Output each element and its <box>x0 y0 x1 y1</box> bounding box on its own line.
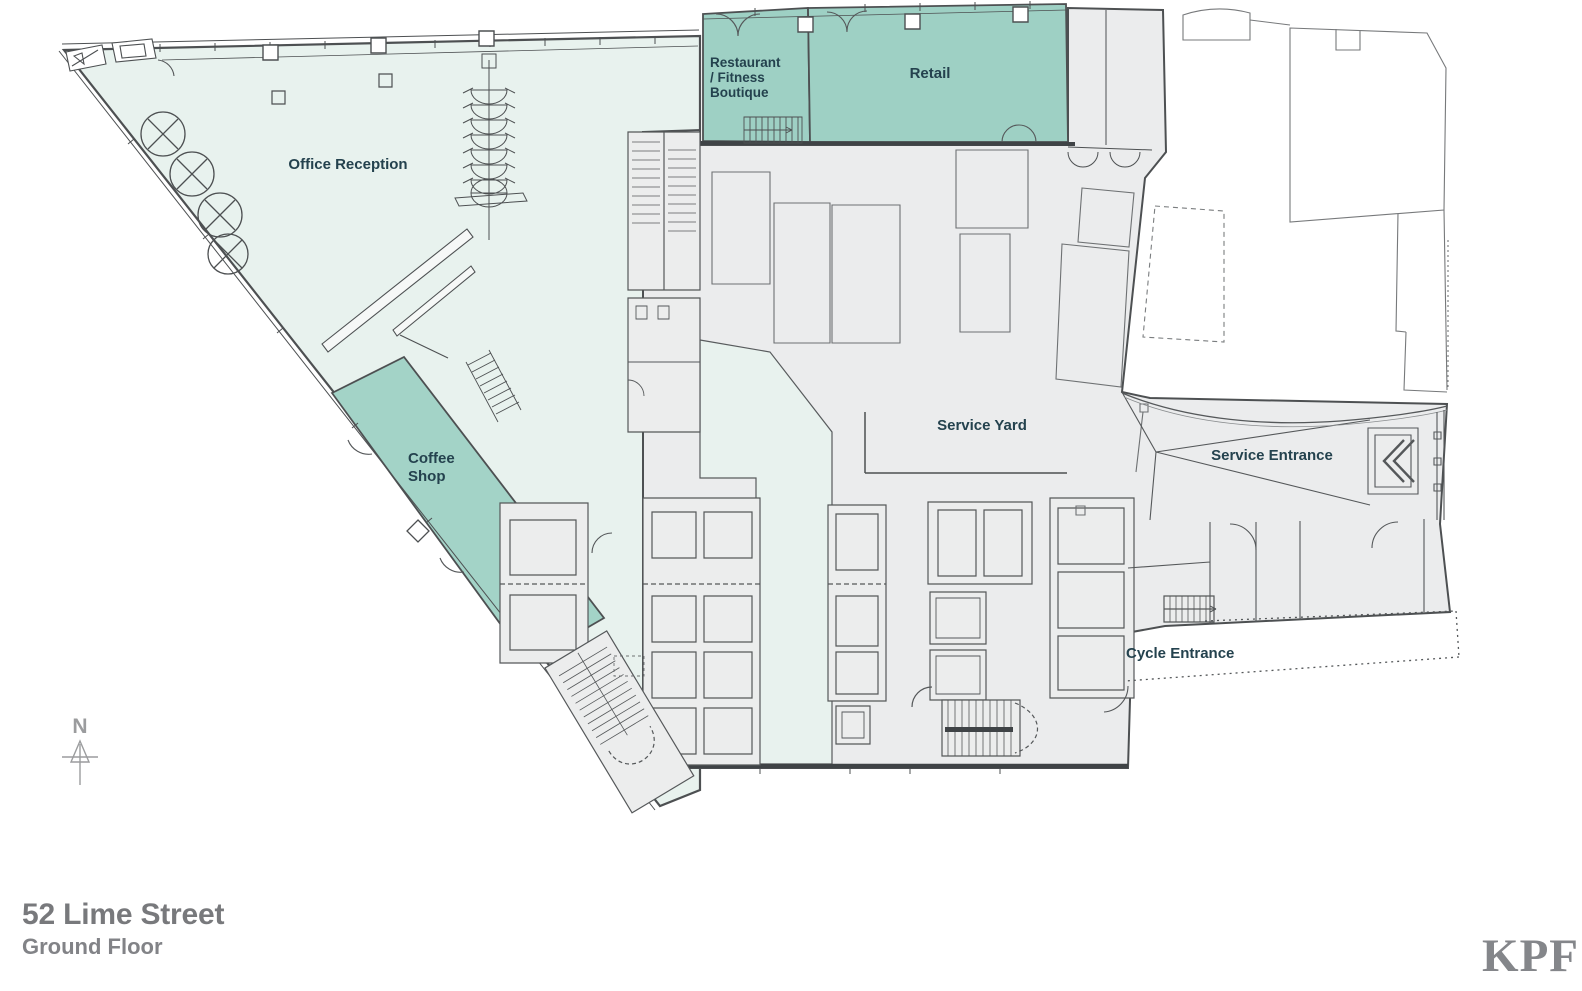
coffee-diamond-table <box>407 520 429 542</box>
floor-subtitle: Ground Floor <box>22 933 224 961</box>
context-pavilion <box>1183 9 1250 40</box>
stair-cycle <box>1164 596 1216 622</box>
north-label: N <box>72 715 87 738</box>
band-ticks-bottom <box>700 769 1000 774</box>
context-building <box>1290 28 1446 222</box>
north-arrow-icon <box>62 741 98 785</box>
label-coffee-line2: Shop <box>408 468 446 485</box>
small-square-core <box>836 706 870 744</box>
stair-core-north <box>628 132 700 290</box>
lift-bank-west <box>500 503 588 663</box>
label-service-entrance: Service Entrance <box>1211 447 1333 464</box>
label-restaurant-line2: / Fitness <box>710 70 765 85</box>
title-block: 52 Lime Street Ground Floor <box>22 898 224 960</box>
chevron-ramp-icon <box>1368 428 1418 494</box>
label-office-reception: Office Reception <box>288 156 407 173</box>
project-title: 52 Lime Street <box>22 898 224 933</box>
kpf-logo: KPF <box>1482 929 1579 983</box>
label-coffee-line1: Coffee <box>408 450 455 467</box>
context-parcel-dashed <box>1143 206 1224 342</box>
label-restaurant-line1: Restaurant <box>710 55 781 70</box>
wc-core <box>628 298 700 432</box>
label-service-yard: Service Yard <box>937 417 1027 434</box>
label-restaurant-line3: Boutique <box>710 85 769 100</box>
context-outlines <box>1143 9 1448 392</box>
lift-bank-east <box>828 505 886 701</box>
floor-plan-canvas: Office Reception Restaurant / Fitness Bo… <box>0 0 1582 991</box>
context-link-line <box>1250 20 1290 25</box>
core-block-east <box>1050 498 1134 698</box>
floor-plan-page: Office Reception Restaurant / Fitness Bo… <box>0 0 1582 991</box>
label-cycle-entrance: Cycle Entrance <box>1126 645 1234 662</box>
label-retail: Retail <box>910 65 951 82</box>
context-building-annex <box>1396 210 1447 392</box>
north-arrow: N <box>62 715 98 785</box>
